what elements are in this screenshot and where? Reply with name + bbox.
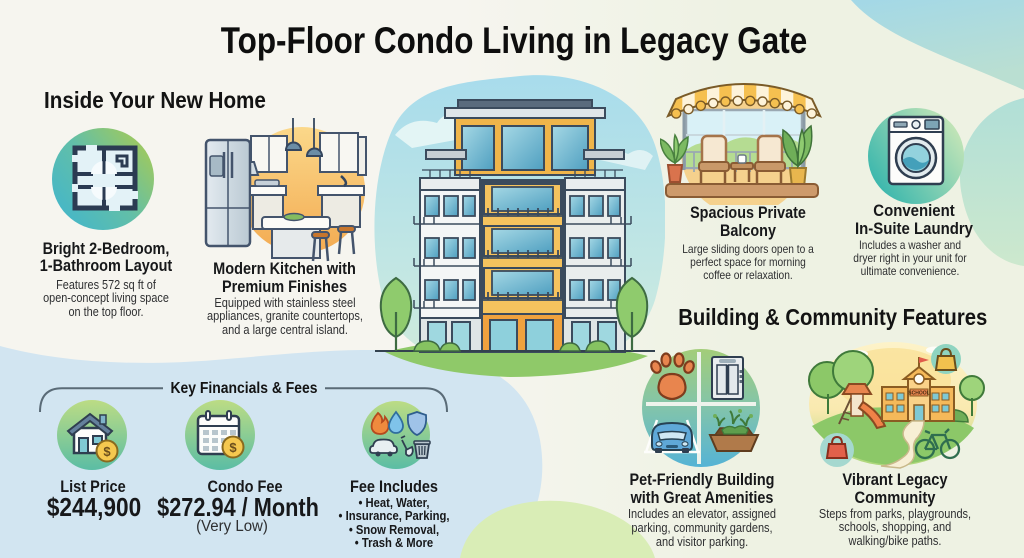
svg-text:$: $ bbox=[103, 444, 111, 459]
svg-text:$: $ bbox=[229, 440, 237, 455]
svg-text:SCHOOL: SCHOOL bbox=[908, 391, 929, 397]
